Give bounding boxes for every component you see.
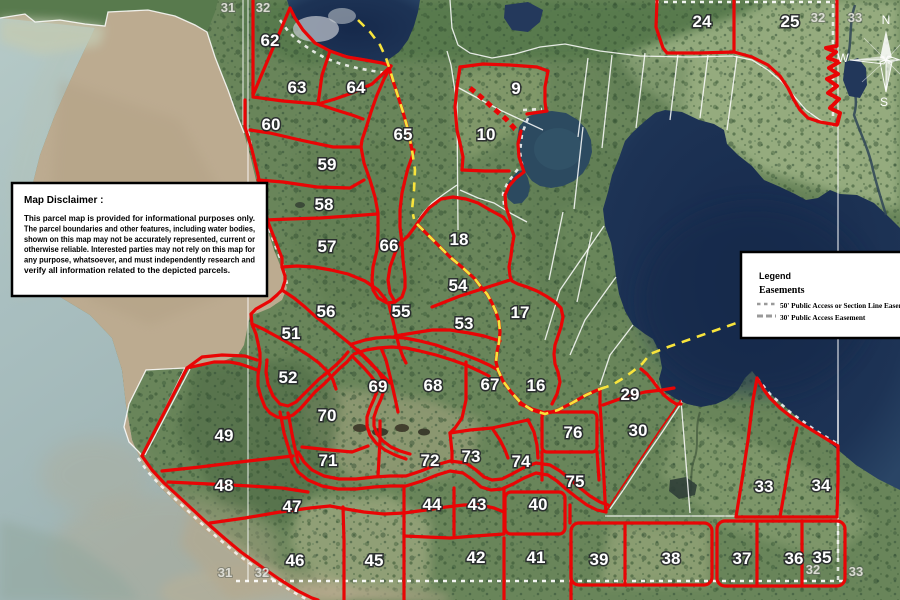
svg-text:66: 66 xyxy=(380,236,399,255)
svg-text:shown on this map may not be a: shown on this map may not be accurately … xyxy=(24,234,256,244)
svg-text:32: 32 xyxy=(255,565,269,580)
svg-text:63: 63 xyxy=(288,78,307,97)
svg-text:50' Public Access or Section L: 50' Public Access or Section Line Easem xyxy=(780,301,900,310)
svg-text:75: 75 xyxy=(566,472,585,491)
svg-text:70: 70 xyxy=(318,406,337,425)
svg-text:33: 33 xyxy=(849,564,863,579)
svg-text:76: 76 xyxy=(564,423,583,442)
svg-text:33: 33 xyxy=(848,10,862,25)
svg-text:49: 49 xyxy=(215,426,234,445)
svg-text:18: 18 xyxy=(450,230,469,249)
svg-text:53: 53 xyxy=(455,314,474,333)
svg-text:32: 32 xyxy=(806,562,820,577)
svg-text:40: 40 xyxy=(529,495,548,514)
svg-text:Map Disclaimer :: Map Disclaimer : xyxy=(24,195,103,206)
svg-text:30' Public Access Easement: 30' Public Access Easement xyxy=(780,313,866,322)
svg-text:32: 32 xyxy=(256,0,270,15)
svg-text:S: S xyxy=(880,95,888,109)
svg-text:10: 10 xyxy=(477,125,496,144)
svg-text:Legend: Legend xyxy=(759,271,791,281)
svg-text:60: 60 xyxy=(262,115,281,134)
svg-text:33: 33 xyxy=(755,477,774,496)
svg-text:The parcel boundaries and othe: The parcel boundaries and other features… xyxy=(24,223,255,233)
svg-text:65: 65 xyxy=(394,125,413,144)
svg-text:62: 62 xyxy=(261,31,280,50)
svg-text:This parcel map is provide: This parcel map is provided for informat… xyxy=(24,213,255,223)
svg-text:74: 74 xyxy=(512,452,531,471)
svg-text:51: 51 xyxy=(282,324,301,343)
svg-text:25: 25 xyxy=(781,12,800,31)
svg-text:47: 47 xyxy=(283,497,302,516)
svg-text:29: 29 xyxy=(621,385,640,404)
svg-text:42: 42 xyxy=(467,548,486,567)
svg-text:any purpose, whatsoever, an: any purpose, whatsoever, and must indepe… xyxy=(24,255,255,265)
svg-text:54: 54 xyxy=(449,276,468,295)
svg-text:43: 43 xyxy=(468,495,487,514)
svg-text:56: 56 xyxy=(317,302,336,321)
svg-text:39: 39 xyxy=(590,550,609,569)
svg-text:58: 58 xyxy=(315,195,334,214)
svg-text:36: 36 xyxy=(785,549,804,568)
svg-text:52: 52 xyxy=(279,368,298,387)
svg-text:57: 57 xyxy=(318,237,337,256)
svg-text:W: W xyxy=(837,51,849,65)
svg-text:16: 16 xyxy=(527,376,546,395)
svg-text:38: 38 xyxy=(662,549,681,568)
svg-text:17: 17 xyxy=(511,303,530,322)
svg-text:67: 67 xyxy=(481,375,500,394)
svg-text:68: 68 xyxy=(424,376,443,395)
svg-text:30: 30 xyxy=(629,421,648,440)
svg-text:31: 31 xyxy=(221,0,235,15)
svg-text:46: 46 xyxy=(286,551,305,570)
svg-text:69: 69 xyxy=(369,377,388,396)
svg-text:9: 9 xyxy=(511,79,520,98)
svg-text:59: 59 xyxy=(318,155,337,174)
svg-text:24: 24 xyxy=(693,12,712,31)
svg-text:verify all information related: verify all information related to the de… xyxy=(24,265,230,275)
svg-text:N: N xyxy=(882,13,891,27)
svg-text:41: 41 xyxy=(527,548,546,567)
svg-text:44: 44 xyxy=(423,495,442,514)
svg-text:37: 37 xyxy=(733,549,752,568)
svg-text:32: 32 xyxy=(811,10,825,25)
svg-text:34: 34 xyxy=(812,476,831,495)
svg-text:31: 31 xyxy=(218,565,232,580)
svg-text:otherwise reliable. Intereste: otherwise reliable. Interested parties m… xyxy=(24,244,256,254)
svg-text:Easements: Easements xyxy=(759,285,805,296)
svg-text:73: 73 xyxy=(462,447,481,466)
svg-text:45: 45 xyxy=(365,551,384,570)
svg-text:72: 72 xyxy=(421,451,440,470)
svg-text:55: 55 xyxy=(392,302,411,321)
svg-text:48: 48 xyxy=(215,476,234,495)
svg-text:71: 71 xyxy=(319,451,338,470)
svg-text:64: 64 xyxy=(347,78,366,97)
